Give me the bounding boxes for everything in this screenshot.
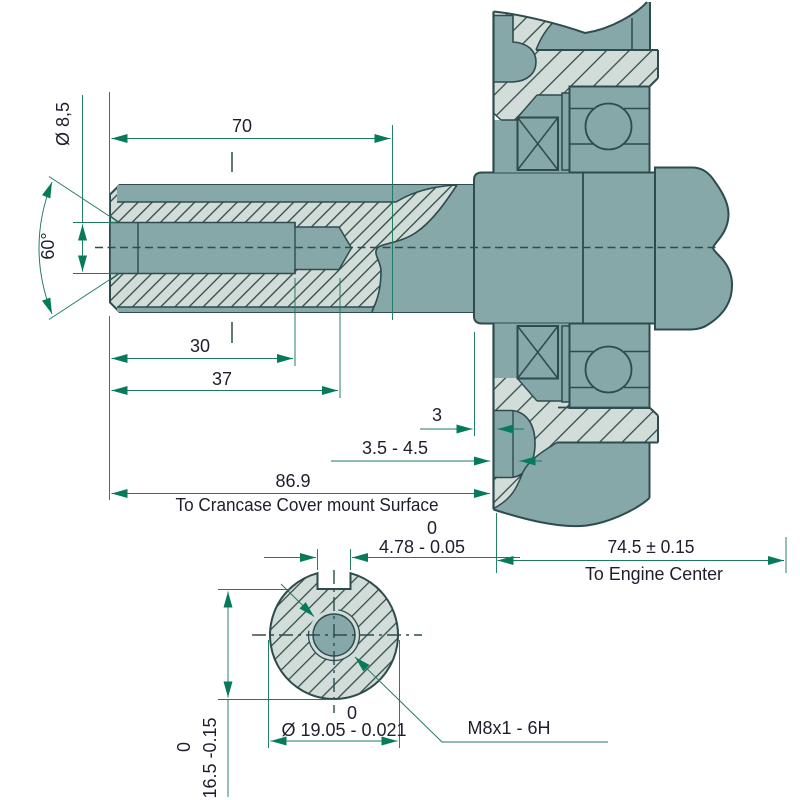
svg-text:Ø 8,5: Ø 8,5 <box>53 102 73 146</box>
svg-text:86.9: 86.9 <box>275 471 310 491</box>
svg-text:37: 37 <box>212 369 232 389</box>
svg-text:To Engine Center: To Engine Center <box>585 564 723 584</box>
svg-text:60°: 60° <box>38 232 58 259</box>
svg-text:74.5 ± 0.15: 74.5 ± 0.15 <box>608 537 695 557</box>
svg-text:To Crancase Cover mount Surfac: To Crancase Cover mount Surface <box>176 495 439 515</box>
svg-text:Ø 19.05 - 0.021: Ø 19.05 - 0.021 <box>281 720 406 740</box>
svg-text:3.5 - 4.5: 3.5 - 4.5 <box>362 438 428 458</box>
svg-text:0: 0 <box>174 742 194 752</box>
svg-text:30: 30 <box>190 336 210 356</box>
svg-text:M8x1 - 6H: M8x1 - 6H <box>467 718 550 738</box>
svg-text:4.78 - 0.05: 4.78 - 0.05 <box>379 537 465 557</box>
svg-text:70: 70 <box>232 116 252 136</box>
svg-text:3: 3 <box>432 405 442 425</box>
svg-text:0: 0 <box>427 518 437 538</box>
svg-text:16.5 -0.15: 16.5 -0.15 <box>200 717 220 798</box>
